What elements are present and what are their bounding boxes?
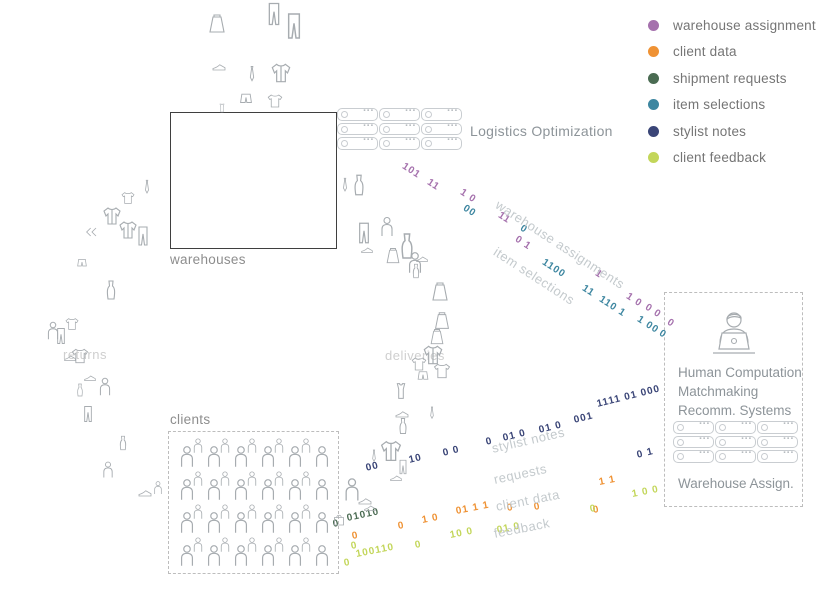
- person-icon: [216, 536, 234, 554]
- warehouse-assignments-digits: 0 1: [513, 234, 533, 252]
- person-icon: [297, 536, 315, 554]
- dress-icon: [99, 278, 123, 302]
- stylist-notes-digits: 0 0: [442, 444, 461, 459]
- server-unit-icon: [337, 137, 378, 150]
- person-icon: [216, 503, 234, 521]
- logistics-server-rack: [337, 108, 463, 152]
- legend-label: item selections: [673, 97, 765, 112]
- shoe-icon: [62, 350, 78, 366]
- person-at-laptop-icon: [705, 309, 763, 361]
- person-icon: [150, 480, 166, 496]
- warehouses-label: warehouses: [170, 252, 246, 267]
- pants-icon: [51, 326, 71, 346]
- shorts-icon: [74, 256, 90, 272]
- dress-icon: [114, 434, 132, 452]
- tank-icon: [216, 102, 228, 114]
- skirt-icon: [205, 12, 229, 36]
- client-feedback-digits: 1 0 0: [631, 484, 660, 500]
- client-data-digits: 0: [397, 520, 406, 532]
- stylist-notes-digits: 1111 01 000: [596, 383, 662, 409]
- tie-icon: [424, 405, 440, 421]
- legend-label: warehouse assignment: [673, 18, 816, 33]
- logistics-optimization-label: Logistics Optimization: [470, 123, 613, 139]
- warehouse-assign-label: Warehouse Assign.: [678, 476, 794, 491]
- person-icon: [189, 470, 207, 488]
- skirt-icon: [383, 246, 403, 266]
- warehouses-box: [170, 112, 337, 249]
- person-icon: [270, 536, 288, 554]
- dress-icon: [346, 172, 372, 198]
- client-data-digits: 1 1: [598, 474, 617, 488]
- shorts-icon: [236, 90, 256, 110]
- dress-icon: [393, 416, 413, 436]
- person-icon: [189, 437, 207, 455]
- client-feedback-digits: 0: [343, 557, 352, 569]
- legend-dot-icon: [648, 126, 659, 137]
- legend-item: client data: [648, 39, 828, 66]
- jacket-icon: [268, 60, 294, 86]
- person-icon: [243, 503, 261, 521]
- item-selections-digits: 00: [461, 203, 478, 219]
- pants-icon: [278, 10, 310, 42]
- client-feedback-digits: 10 0: [449, 526, 474, 541]
- person-icon: [270, 503, 288, 521]
- legend-dot-icon: [648, 152, 659, 163]
- warehouse-assignments-digits: 101: [400, 161, 423, 181]
- person-icon: [270, 437, 288, 455]
- legend-item: shipment requests: [648, 65, 828, 92]
- person-icon: [189, 536, 207, 554]
- legend-item: warehouse assignment: [648, 12, 828, 39]
- person-icon: [297, 470, 315, 488]
- tie-icon: [138, 178, 156, 196]
- person-icon: [94, 376, 116, 398]
- legend-dot-icon: [648, 99, 659, 110]
- person-icon: [297, 437, 315, 455]
- client-feedback-digits: 0: [414, 539, 423, 551]
- person-icon: [243, 536, 261, 554]
- tshirt-icon: [266, 92, 284, 110]
- client-data-digits: 1 0: [421, 512, 440, 526]
- person-icon: [216, 437, 234, 455]
- shoe-icon: [388, 470, 404, 486]
- tank-icon: [390, 380, 412, 402]
- dress-icon: [407, 262, 425, 280]
- legend: warehouse assignmentclient datashipment …: [648, 12, 828, 171]
- shoe-icon: [210, 58, 228, 76]
- person-icon: [243, 470, 261, 488]
- tie-icon: [242, 64, 262, 84]
- server-unit-icon: [673, 450, 714, 463]
- shorts-icon: [414, 368, 432, 386]
- panel-title: Human Computation Matchmaking Recomm. Sy…: [678, 363, 802, 420]
- person-icon: [216, 470, 234, 488]
- item-selections-digits: 11: [580, 283, 597, 299]
- pants-icon: [131, 224, 155, 248]
- legend-dot-icon: [648, 20, 659, 31]
- legend-label: client feedback: [673, 150, 766, 165]
- legend-dot-icon: [648, 46, 659, 57]
- clients-label: clients: [170, 412, 210, 427]
- human-computation-panel: Human Computation Matchmaking Recomm. Sy…: [664, 292, 803, 507]
- person-icon: [297, 503, 315, 521]
- server-unit-icon: [757, 450, 798, 463]
- chevrons-icon: [84, 224, 100, 240]
- client-feedback-digits: 100110: [355, 542, 395, 560]
- shoe-icon: [359, 242, 375, 258]
- client-data-label: client data: [495, 487, 561, 514]
- skirt-icon: [428, 280, 452, 304]
- server-unit-icon: [379, 137, 420, 150]
- person-icon: [189, 503, 207, 521]
- client-data-digits: 01 1 1: [455, 500, 490, 517]
- pants-icon: [78, 404, 98, 424]
- legend-item: client feedback: [648, 145, 828, 172]
- server-unit-icon: [715, 450, 756, 463]
- stylist-notes-label: stylist notes: [490, 424, 566, 455]
- legend-label: stylist notes: [673, 124, 746, 139]
- server-unit-icon: [421, 137, 462, 150]
- legend-item: item selections: [648, 92, 828, 119]
- requests-label: requests: [492, 461, 548, 487]
- stylist-notes-digits: 001: [573, 410, 595, 425]
- warehouse-assignments-digits: 11: [425, 177, 442, 193]
- feedback-label: feedback: [493, 515, 552, 541]
- stylist-notes-digits: 0 1: [636, 446, 655, 461]
- warehouse-assignments-digits: 1 0: [458, 187, 478, 205]
- legend-label: shipment requests: [673, 71, 787, 86]
- person-icon: [243, 437, 261, 455]
- warehouse-assignments-digits: 1 0: [624, 291, 644, 309]
- item-selections-digits: 110 1: [597, 294, 628, 319]
- diagram-canvas: warehouse assignmentclient datashipment …: [0, 0, 836, 592]
- legend-dot-icon: [648, 73, 659, 84]
- legend-item: stylist notes: [648, 118, 828, 145]
- warehouse-assign-server-rack: [673, 421, 799, 465]
- person-icon: [98, 460, 118, 480]
- person-icon: [270, 470, 288, 488]
- dress-icon: [72, 382, 88, 398]
- tshirt-icon: [432, 361, 452, 381]
- shoe-icon: [362, 500, 378, 516]
- legend-label: client data: [673, 44, 737, 59]
